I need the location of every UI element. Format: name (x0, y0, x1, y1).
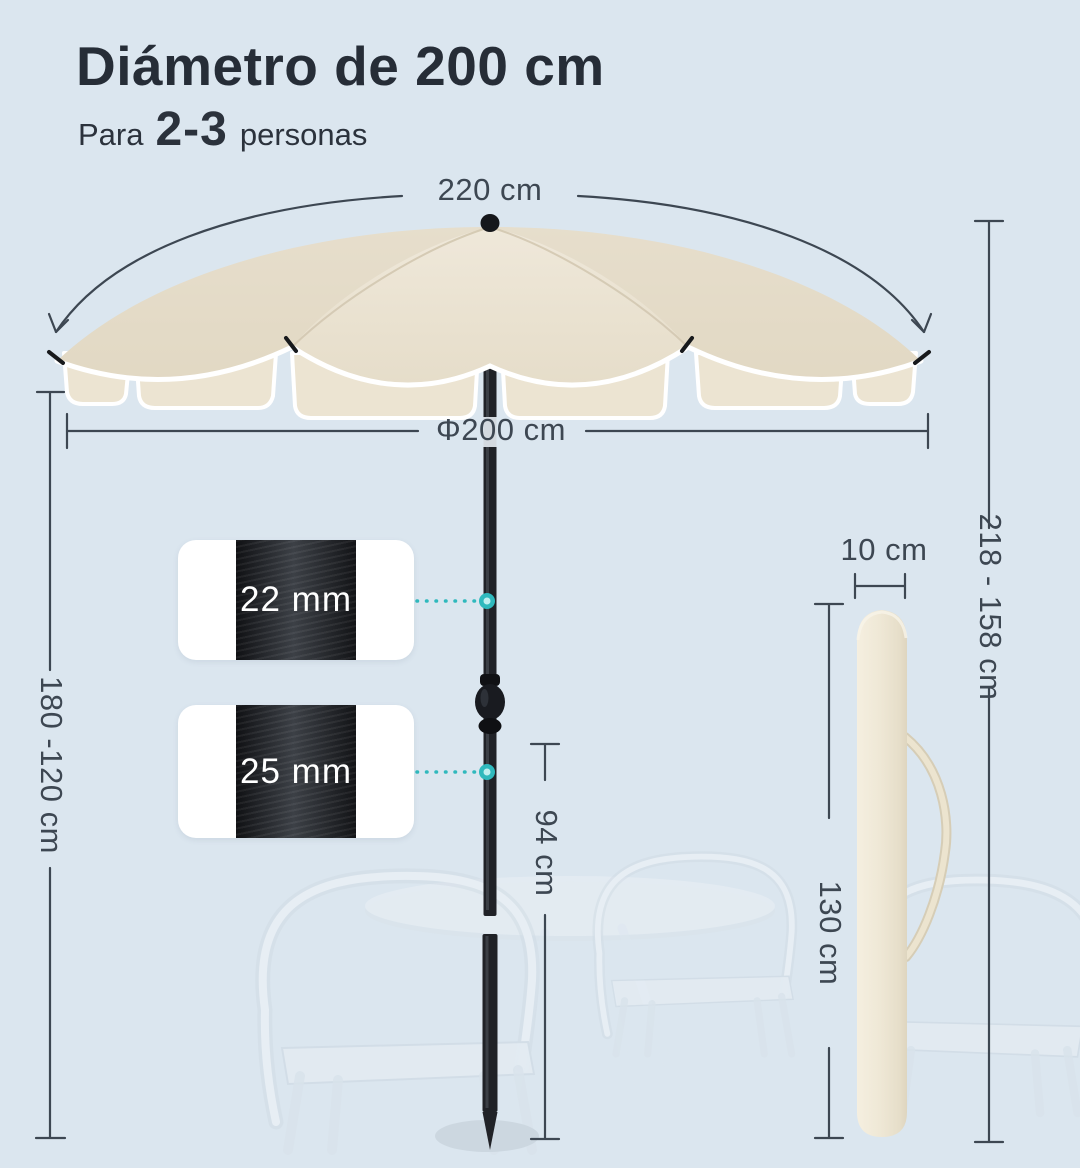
ghost-furniture (263, 857, 1080, 1150)
pole-closeup-photo-lower: 25 mm (236, 705, 356, 838)
callout-upper-pole-label: 22 mm (240, 580, 352, 620)
dim-label-canopy-arc: 220 cm (438, 172, 543, 208)
arc-220-arrow-right (912, 314, 931, 332)
dim-label-total-height: 218 - 158 cm (972, 514, 1008, 701)
dim-130-line (815, 604, 843, 1138)
callout-upper-pole: 22 mm (178, 540, 414, 660)
ghost-table-top (365, 876, 775, 936)
page-subtitle: Para 2-3 personas (78, 102, 367, 157)
page-title: Diámetro de 200 cm (76, 34, 605, 98)
dim-label-bag-length: 130 cm (812, 881, 848, 986)
pole-tilt-joint (475, 674, 505, 734)
dim-label-diameter: Φ200 cm (436, 412, 566, 448)
bag-body (857, 610, 907, 1137)
dim-label-bag-diameter: 10 cm (841, 532, 928, 568)
dim-label-lower-segment: 94 cm (528, 810, 564, 897)
bag-handle (905, 737, 946, 957)
dim-label-pole-height: 180 -120 cm (33, 676, 69, 854)
callout-lower-pole-label: 25 mm (240, 752, 352, 792)
carry-bag (857, 610, 946, 1137)
infographic-canvas: Diámetro de 200 cm Para 2-3 personas 220… (0, 0, 1080, 1168)
arc-220-arrow-left (49, 314, 68, 332)
dim-10-line (855, 574, 905, 598)
canopy-finial (481, 214, 500, 232)
pole-closeup-photo-upper: 22 mm (236, 540, 356, 660)
subtitle-capacity: 2-3 (155, 102, 227, 157)
subtitle-suffix: personas (240, 117, 368, 153)
callout-lower-pole: 25 mm (178, 705, 414, 838)
subtitle-prefix: Para (78, 117, 143, 153)
